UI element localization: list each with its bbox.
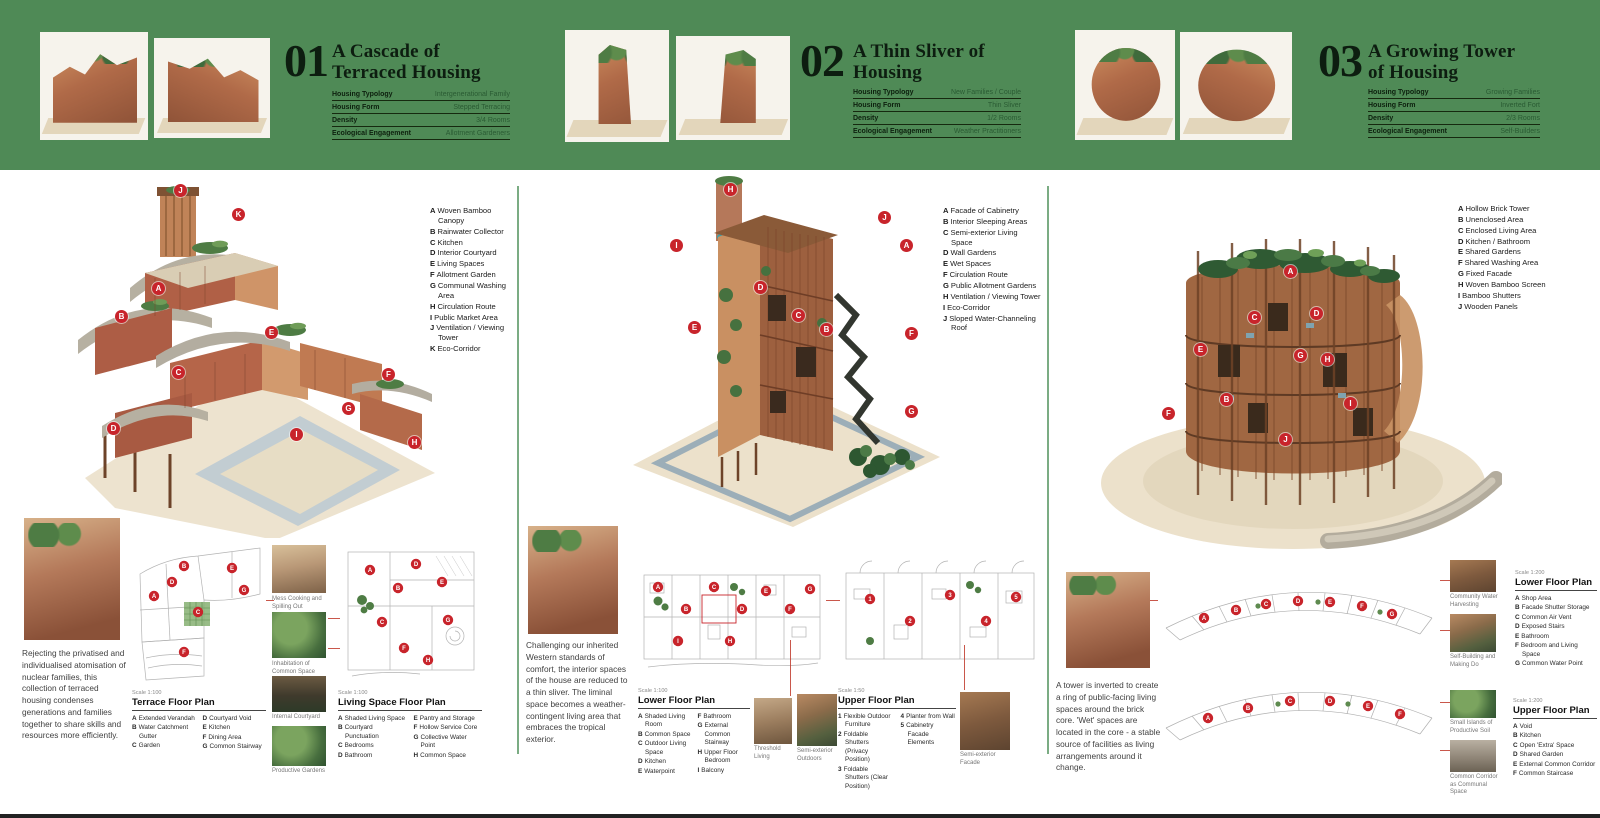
model-marker: H: [408, 436, 421, 449]
plan-scale: Scale 1:100: [132, 690, 266, 696]
model-photo-small: [154, 38, 270, 138]
photo-self-building: [1450, 614, 1496, 652]
svg-text:G: G: [446, 618, 451, 624]
legend-item: EShared Gardens: [1458, 247, 1560, 257]
section-title-line2: Terraced Housing: [332, 63, 481, 84]
photo-caption: Inhabitation of Common Space: [272, 661, 328, 676]
model-marker: A: [1284, 265, 1297, 278]
spec-value: 3/4 Rooms: [476, 117, 510, 124]
model-illustration-sliver: A B C D E F G H I J: [618, 175, 953, 527]
section-title-line1: A Thin Sliver of: [853, 42, 985, 63]
model-marker: I: [670, 239, 683, 252]
spec-value: Weather Practitioners: [954, 128, 1021, 135]
spec-label: Density: [1368, 115, 1393, 122]
plan-scale: Scale 1:200: [1515, 570, 1597, 576]
model-marker: J: [878, 211, 891, 224]
svg-text:E: E: [1366, 704, 1370, 710]
svg-text:E: E: [230, 566, 234, 572]
living-space-floor-plan-block: Scale 1:100 Living Space Floor Plan ASha…: [338, 690, 482, 761]
connector-line: [790, 640, 791, 696]
svg-text:A: A: [656, 585, 661, 591]
legend-item: GFixed Facade: [1458, 269, 1560, 279]
plan-legend-col: AShop Area BFacade Shutter Storage CComm…: [1515, 595, 1597, 669]
legend-item: JVentilation / Viewing Tower: [430, 323, 518, 343]
connector-line: [328, 648, 340, 649]
photo-caption: Mess Cooking and Spilling Out: [272, 596, 328, 611]
model-marker: H: [1321, 353, 1334, 366]
spec-value: 2/3 Rooms: [1506, 115, 1540, 122]
spec-value: Inverted Fort: [1500, 102, 1540, 109]
legend-item: IPublic Market Area: [430, 313, 518, 323]
spec-row: Housing TypologyGrowing Families: [1368, 86, 1540, 99]
legend-item: GCommunal Washing Area: [430, 281, 518, 301]
plan-legend-col: 4Planter from Wall 5Cabinetry Facade Ele…: [901, 713, 957, 792]
spec-row: Density2/3 Rooms: [1368, 112, 1540, 125]
spec-label: Housing Typology: [853, 89, 914, 96]
terrace-floor-plan-block: Scale 1:100 Terrace Floor Plan AExtended…: [132, 690, 266, 753]
spec-row: Density3/4 Rooms: [332, 114, 510, 127]
svg-text:G: G: [242, 588, 247, 594]
plan-legend-col: AShaded Living Space BCourtyard Punctuat…: [338, 715, 407, 761]
legend-item: CKitchen: [430, 238, 518, 248]
svg-text:B: B: [396, 586, 401, 592]
connector-line: [964, 645, 965, 690]
connector-line: [1150, 600, 1158, 601]
panel-divider: [1047, 186, 1049, 754]
model-marker: C: [1248, 311, 1261, 324]
plan-title: Lower Floor Plan: [638, 695, 750, 709]
model-illustration-cascade: A B C D E F G H I J K: [60, 178, 440, 538]
plan-scale: Scale 1:200: [1513, 698, 1597, 704]
photo-common-corridor: [1450, 740, 1496, 772]
legend-item: AFacade of Cabinetry: [943, 206, 1041, 216]
connector-line: [826, 600, 840, 601]
svg-text:E: E: [440, 580, 444, 586]
svg-text:B: B: [1246, 706, 1251, 712]
plan-markers: A B C D E F G: [149, 561, 249, 657]
spec-row: Ecological EngagementAllotment Gardeners: [332, 127, 510, 140]
model-mass: [690, 48, 779, 123]
spec-value: Stepped Terracing: [453, 104, 510, 111]
model-marker: B: [820, 323, 833, 336]
photo-semi-exterior-outdoors: [797, 694, 837, 746]
bottom-edge-bar: [0, 814, 1600, 818]
spec-row: Housing FormThin Sliver: [853, 99, 1021, 112]
legend-item: IEco-Corridor: [943, 303, 1041, 313]
legend-cascade: AWoven Bamboo Canopy BRainwater Collecto…: [430, 206, 518, 355]
svg-text:B: B: [1234, 608, 1239, 614]
svg-text:B: B: [684, 607, 689, 613]
legend-item: DWall Gardens: [943, 248, 1041, 258]
svg-text:F: F: [1398, 712, 1402, 718]
svg-text:C: C: [1264, 602, 1269, 608]
legend-item: ELiving Spaces: [430, 259, 518, 269]
model-marker: G: [905, 405, 918, 418]
svg-text:F: F: [1360, 604, 1364, 610]
svg-text:D: D: [1296, 599, 1301, 605]
legend-item: BUnenclosed Area: [1458, 215, 1560, 225]
model-marker: D: [107, 422, 120, 435]
model-marker: C: [792, 309, 805, 322]
model-marker: E: [265, 326, 278, 339]
photo-caption: Community Water Harvesting: [1450, 594, 1500, 609]
model-marker: E: [688, 321, 701, 334]
terrace-floor-plan-drawing: A B C D E F G: [132, 540, 268, 691]
ring-upper-floor-plan-drawing: A B C D E F: [1158, 652, 1440, 749]
section-title: A Cascade of Terraced Housing: [332, 42, 481, 84]
spec-label: Ecological Engagement: [332, 130, 411, 137]
spec-row: Housing FormStepped Terracing: [332, 101, 510, 114]
legend-item: AHollow Brick Tower: [1458, 204, 1560, 214]
model-mass: [1087, 43, 1165, 122]
svg-text:F: F: [402, 646, 406, 652]
plan-title: Upper Floor Plan: [1513, 705, 1597, 719]
spec-label: Ecological Engagement: [1368, 128, 1447, 135]
sliver-model-svg: [618, 175, 953, 527]
connector-line: [328, 618, 340, 619]
spec-table: Housing TypologyGrowing Families Housing…: [1368, 86, 1540, 138]
legend-item: CEnclosed Living Area: [1458, 226, 1560, 236]
legend-item: FAllotment Garden: [430, 270, 518, 280]
legend-item: FCirculation Route: [943, 270, 1041, 280]
ring-lower-floor-plan-block: Scale 1:200 Lower Floor Plan AShop Area …: [1515, 570, 1597, 670]
section-title-line1: A Cascade of: [332, 42, 481, 63]
presentation-board: 01 A Cascade of Terraced Housing Housing…: [0, 0, 1600, 818]
connector-line: [1440, 630, 1450, 631]
svg-text:E: E: [764, 589, 768, 595]
svg-text:C: C: [712, 585, 717, 591]
section-title-line1: A Growing Tower: [1368, 42, 1515, 63]
model-marker: K: [232, 208, 245, 221]
model-mass: [577, 43, 658, 124]
spec-row: Housing TypologyIntergenerational Family: [332, 88, 510, 101]
panel-description: Rejecting the privatised and individuali…: [22, 648, 128, 742]
legend-item: HVentilation / Viewing Tower: [943, 292, 1041, 302]
banner: 01 A Cascade of Terraced Housing Housing…: [0, 0, 1600, 170]
connector-line: [1440, 580, 1450, 581]
model-marker: B: [115, 310, 128, 323]
panel-description: Challenging our inherited Western standa…: [526, 640, 634, 746]
ring-upper-floor-plan-block: Scale 1:200 Upper Floor Plan AVoid BKitc…: [1513, 698, 1597, 780]
plan-legend-col: 1Flexible Outdoor Furniture 2Foldable Sh…: [838, 713, 894, 792]
upper-floor-plan-block: Scale 1:50 Upper Floor Plan 1Flexible Ou…: [838, 688, 956, 792]
model-mass: [1193, 45, 1280, 123]
lower-floor-plan-drawing: A B C D E F G H I: [638, 545, 826, 685]
section-number: 02: [800, 40, 844, 81]
svg-text:H: H: [426, 658, 430, 664]
photo-productive-soil: [1450, 690, 1496, 718]
legend-item: HCirculation Route: [430, 302, 518, 312]
connector-line: [1440, 750, 1450, 751]
photo-caption: Semi-exterior Outdoors: [797, 748, 839, 763]
photo-internal-courtyard: [272, 676, 326, 712]
photo-caption: Threshold Living: [754, 746, 794, 761]
spec-value: 1/2 Rooms: [987, 115, 1021, 122]
svg-text:F: F: [182, 650, 186, 656]
legend-item: BRainwater Collector: [430, 227, 518, 237]
tower-model-svg: [1098, 183, 1502, 565]
living-space-floor-plan-drawing: A B C D E F G H: [340, 536, 482, 691]
svg-text:C: C: [196, 610, 201, 616]
legend-item: CSemi-exterior Living Space: [943, 228, 1041, 248]
legend-item: HWoven Bamboo Screen: [1458, 280, 1560, 290]
plan-markers: A B C D E F G H I: [653, 582, 815, 646]
section-title: A Thin Sliver of Housing: [853, 42, 985, 84]
model-marker: G: [342, 402, 355, 415]
spec-label: Housing Form: [332, 104, 379, 111]
spec-table: Housing TypologyNew Families / Couple Ho…: [853, 86, 1021, 138]
section-title-line2: of Housing: [1368, 63, 1515, 84]
legend-item: GPublic Allotment Gardens: [943, 281, 1041, 291]
plan-legend-col: EPantry and Storage FHollow Service Core…: [414, 715, 483, 761]
legend-item: EWet Spaces: [943, 259, 1041, 269]
legend-item: AWoven Bamboo Canopy: [430, 206, 518, 226]
spec-value: Intergenerational Family: [435, 91, 510, 98]
connector-line: [1440, 702, 1450, 703]
photo-productive-gardens: [272, 726, 326, 766]
photo-community-water: [1450, 560, 1496, 592]
spec-row: Ecological EngagementWeather Practitione…: [853, 125, 1021, 138]
svg-text:D: D: [1328, 699, 1333, 705]
model-marker: F: [382, 368, 395, 381]
spec-value: Thin Sliver: [988, 102, 1021, 109]
spec-value: Growing Families: [1486, 89, 1540, 96]
legend-item: JWooden Panels: [1458, 302, 1560, 312]
model-marker: B: [1220, 393, 1233, 406]
cascade-model-svg: [60, 178, 440, 538]
plan-markers: A B C D E F G: [1199, 596, 1397, 623]
svg-text:G: G: [808, 587, 813, 593]
plan-legend-col: FBathroom GExternal Common Stairway HUpp…: [698, 713, 751, 777]
detail-photo: [24, 518, 120, 640]
spec-row: Ecological EngagementSelf-Builders: [1368, 125, 1540, 138]
photo-mess-cooking: [272, 545, 326, 593]
svg-text:B: B: [182, 564, 187, 570]
svg-text:D: D: [414, 562, 419, 568]
spec-label: Density: [332, 117, 357, 124]
model-photo-small: [1075, 30, 1175, 140]
photo-caption: Productive Gardens: [272, 768, 328, 776]
model-marker: F: [1162, 407, 1175, 420]
model-marker: J: [1279, 433, 1292, 446]
legend-item: JSloped Water-Channeling Roof: [943, 314, 1041, 334]
plan-legend-col: DCourtyard Void EKitchen FDining Area GC…: [203, 715, 267, 753]
section-title: A Growing Tower of Housing: [1368, 42, 1515, 84]
spec-label: Housing Typology: [1368, 89, 1429, 96]
model-marker: J: [174, 184, 187, 197]
plan-scale: Scale 1:50: [838, 688, 956, 694]
section-number: 03: [1318, 40, 1362, 81]
model-marker: H: [724, 183, 737, 196]
model-mass: [168, 50, 259, 122]
photo-semi-exterior-facade: [960, 692, 1010, 750]
svg-text:A: A: [368, 568, 373, 574]
detail-photo: [1066, 572, 1150, 668]
legend-item: IBamboo Shutters: [1458, 291, 1560, 301]
svg-text:D: D: [170, 580, 175, 586]
model-marker: D: [754, 281, 767, 294]
lower-floor-plan-block: Scale 1:100 Lower Floor Plan AShaded Liv…: [638, 688, 750, 777]
plan-legend-col: AVoid BKitchen COpen 'Extra' Space DShar…: [1513, 723, 1597, 779]
section-number: 01: [284, 40, 328, 81]
photo-caption: Semi-exterior Facade: [960, 752, 1012, 767]
plan-scale: Scale 1:100: [638, 688, 750, 694]
svg-text:H: H: [728, 639, 732, 645]
legend-item: DKitchen / Bathroom: [1458, 237, 1560, 247]
model-marker: G: [1294, 349, 1307, 362]
model-marker: D: [1310, 307, 1323, 320]
upper-floor-plan-drawing: 1 2 3 4 5: [840, 545, 1040, 685]
svg-text:C: C: [380, 620, 385, 626]
plan-legend-col: AExtended Verandah BWater Catchment Gutt…: [132, 715, 196, 753]
plan-title: Terrace Floor Plan: [132, 697, 266, 711]
plan-title: Living Space Floor Plan: [338, 697, 482, 711]
svg-text:A: A: [152, 594, 157, 600]
spec-label: Housing Typology: [332, 91, 393, 98]
legend-item: BInterior Sleeping Areas: [943, 217, 1041, 227]
plan-scale: Scale 1:100: [338, 690, 482, 696]
model-marker: A: [152, 282, 165, 295]
legend-item: DInterior Courtyard: [430, 248, 518, 258]
model-marker: I: [1344, 397, 1357, 410]
spec-value: Self-Builders: [1500, 128, 1540, 135]
model-marker: A: [900, 239, 913, 252]
panel-description: A tower is inverted to create a ring of …: [1056, 680, 1164, 774]
section-title-line2: Housing: [853, 63, 985, 84]
model-marker: F: [905, 327, 918, 340]
spec-row: Density1/2 Rooms: [853, 112, 1021, 125]
model-mass: [53, 45, 137, 123]
photo-threshold-living: [754, 698, 792, 744]
legend-item: FShared Washing Area: [1458, 258, 1560, 268]
model-marker: C: [172, 366, 185, 379]
spec-label: Density: [853, 115, 878, 122]
svg-text:G: G: [1390, 612, 1395, 618]
photo-inhabitation: [272, 612, 326, 658]
spec-value: Allotment Gardeners: [446, 130, 510, 137]
detail-photo: [528, 526, 618, 634]
svg-text:A: A: [1206, 716, 1211, 722]
photo-caption: Internal Courtyard: [272, 714, 328, 722]
legend-sliver: AFacade of Cabinetry BInterior Sleeping …: [943, 206, 1041, 334]
model-marker: E: [1194, 343, 1207, 356]
photo-caption: Common Corridor as Communal Space: [1450, 774, 1500, 797]
connector-line: [266, 600, 274, 601]
plan-title: Lower Floor Plan: [1515, 577, 1597, 591]
model-illustration-tower: A B C D E F G H I J: [1098, 183, 1502, 565]
legend-item: KEco-Corridor: [430, 344, 518, 354]
model-marker: I: [290, 428, 303, 441]
svg-text:F: F: [788, 607, 792, 613]
model-photo-small: [40, 32, 148, 140]
spec-label: Housing Form: [1368, 102, 1415, 109]
model-photo-small: [676, 36, 790, 140]
plan-legend-col: AShaded Living Room BCommon Space COutdo…: [638, 713, 691, 777]
plan-title: Upper Floor Plan: [838, 695, 956, 709]
spec-table: Housing TypologyIntergenerational Family…: [332, 88, 510, 140]
legend-tower: AHollow Brick Tower BUnenclosed Area CEn…: [1458, 204, 1560, 313]
svg-text:D: D: [740, 607, 745, 613]
photo-caption: Small Islands of Productive Soil: [1450, 720, 1500, 735]
svg-text:C: C: [1288, 699, 1293, 705]
spec-value: New Families / Couple: [951, 89, 1021, 96]
model-photo-small: [565, 30, 669, 142]
plan-markers: A B C D E F G H: [365, 559, 453, 665]
spec-row: Housing FormInverted Fort: [1368, 99, 1540, 112]
ring-lower-floor-plan-drawing: A B C D E F G: [1158, 556, 1440, 649]
spec-label: Ecological Engagement: [853, 128, 932, 135]
svg-text:E: E: [1328, 600, 1332, 606]
spec-row: Housing TypologyNew Families / Couple: [853, 86, 1021, 99]
spec-label: Housing Form: [853, 102, 900, 109]
model-photo-small: [1180, 32, 1292, 140]
photo-caption: Self-Building and Making Do: [1450, 654, 1500, 669]
svg-text:A: A: [1202, 616, 1207, 622]
